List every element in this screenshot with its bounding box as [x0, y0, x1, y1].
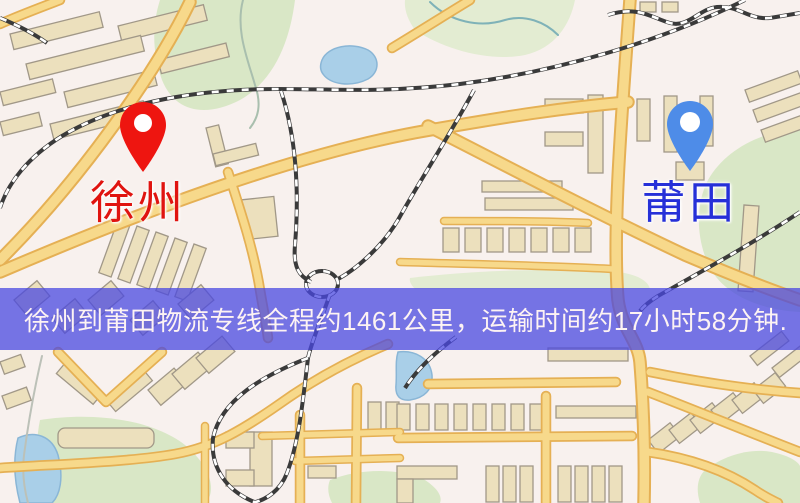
destination-city-label: 莆田	[641, 180, 737, 225]
origin-city-label: 徐州	[90, 180, 186, 225]
map-screenshot: 徐州 莆田 徐州到莆田物流专线全程约1461公里，运输时间约17小时58分钟.	[0, 0, 800, 503]
destination-pin-icon[interactable]	[667, 101, 713, 173]
route-info-banner: 徐州到莆田物流专线全程约1461公里，运输时间约17小时58分钟.	[0, 288, 800, 350]
origin-pin-icon[interactable]	[120, 102, 166, 174]
map-canvas[interactable]	[0, 0, 800, 503]
route-info-text: 徐州到莆田物流专线全程约1461公里，运输时间约17小时58分钟.	[24, 301, 787, 338]
